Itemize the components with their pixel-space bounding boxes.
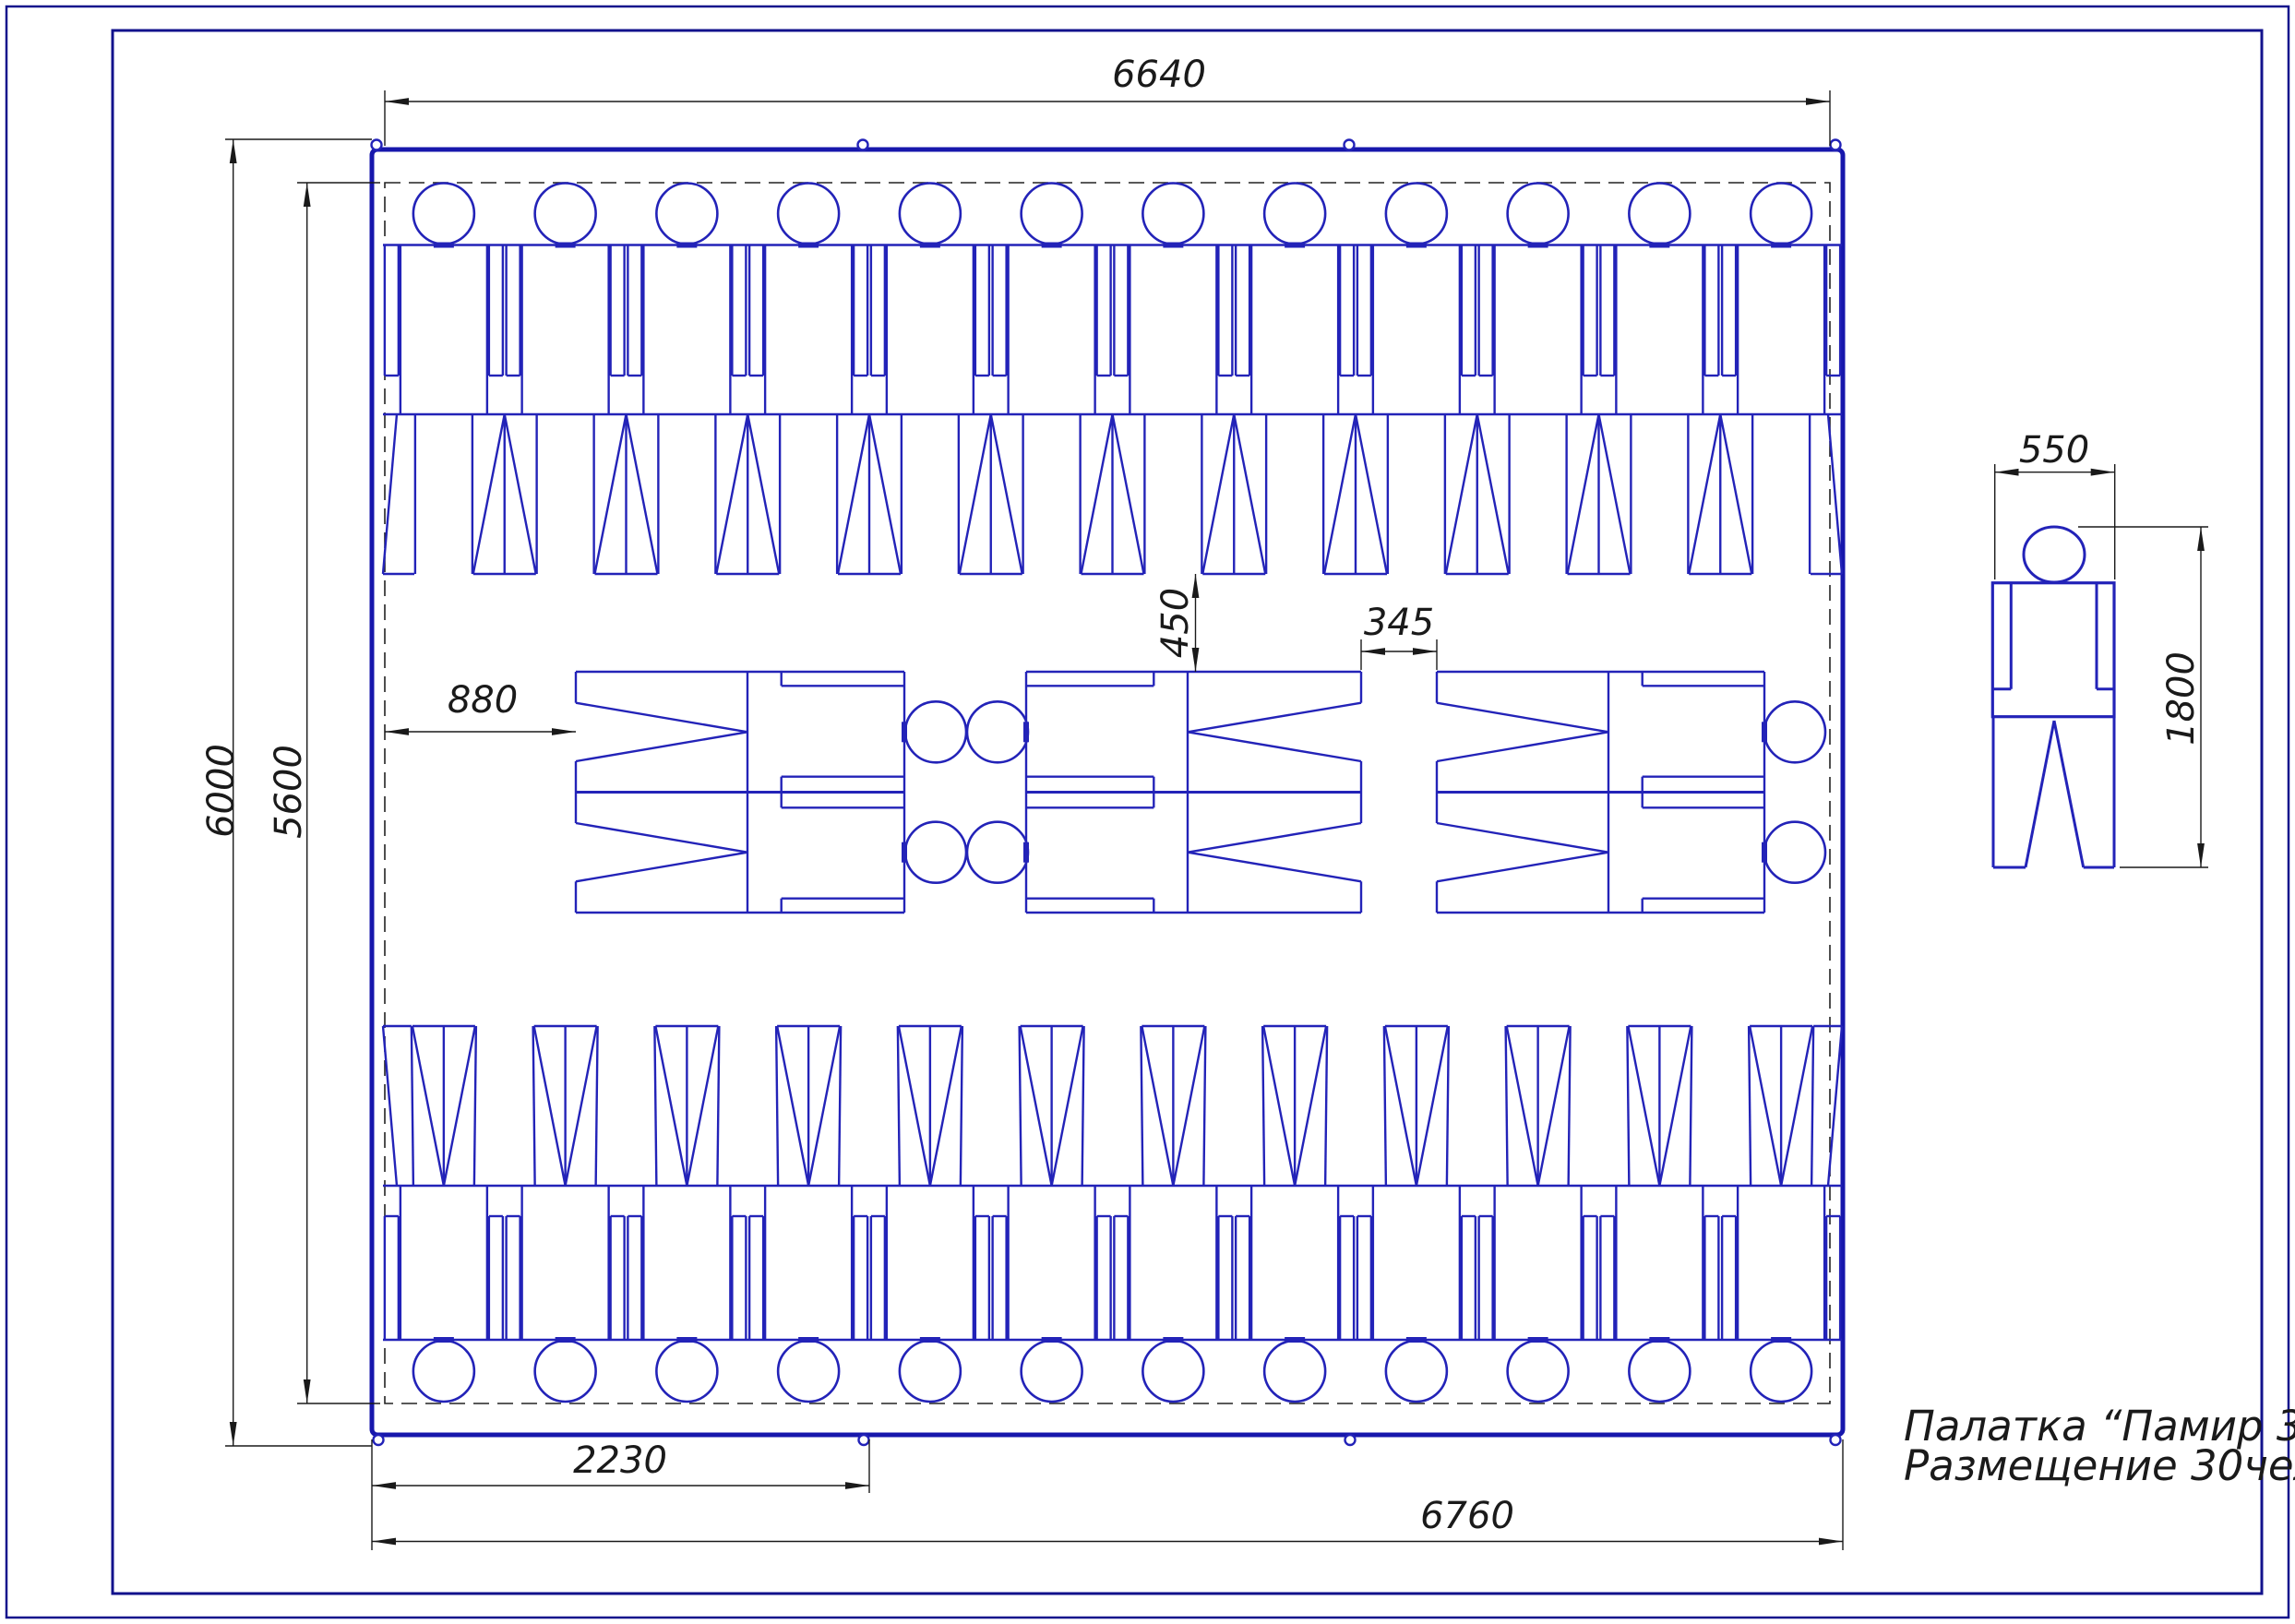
bottom-sleeper-row	[383, 1026, 1842, 1402]
dim-label-tent-top-width: 6640	[1112, 54, 1206, 96]
sleeper-figure	[993, 1026, 1111, 1402]
sleeper-figure	[628, 1026, 746, 1402]
tent-plan-drawing: 6640 6760 2230 6000 5600 880 450 345 550…	[0, 0, 2295, 1624]
legend-person-figure	[1992, 527, 2114, 867]
sleeper-figure	[1357, 1026, 1476, 1402]
dim-label-person-height: 1800	[2160, 651, 2203, 746]
dim-label-person-shoulder-width: 550	[2019, 429, 2089, 472]
sleeper-figure	[507, 1026, 625, 1402]
sleeper-pair-figure	[967, 672, 1361, 913]
tie-loop-icon	[374, 1435, 384, 1445]
drawing-sheet: 6640 6760 2230 6000 5600 880 450 345 550…	[0, 0, 2295, 1624]
sleeper-pair-figure	[576, 672, 966, 913]
dim-label-tent-bottom-width: 6760	[1420, 1495, 1514, 1537]
sleeper-figure	[749, 1026, 867, 1402]
dim-label-middle-groups-gap: 345	[1364, 602, 1434, 644]
dim-label-wall-to-feet-gap: 880	[448, 679, 518, 722]
sleeper-figure	[1114, 1026, 1232, 1402]
tie-loop-icon	[1345, 140, 1355, 150]
sleeper-pair-figure	[1437, 672, 1825, 913]
legend-head	[2024, 527, 2085, 582]
dim-label-sleeping-area-height: 5600	[268, 745, 310, 839]
tie-loop-icon	[372, 140, 382, 150]
top-sleeper-row	[383, 184, 1842, 575]
tie-loop-icon	[1831, 140, 1841, 150]
tie-loop-icon	[1345, 1435, 1356, 1445]
dim-label-rows-gap: 450	[1154, 588, 1197, 658]
tie-loop-icon	[859, 1435, 869, 1445]
tie-loop-icon	[1831, 1435, 1841, 1445]
sleeper-figure	[1236, 1026, 1354, 1402]
drawing-subtitle: Размещение 30чел.	[1904, 1441, 2295, 1490]
dim-label-module-width: 2230	[573, 1439, 667, 1482]
paper-outer-border	[6, 6, 2289, 1618]
tie-loop-icon	[858, 140, 868, 150]
middle-sleeper-groups	[576, 672, 1825, 913]
sleeper-figure	[1722, 1026, 1840, 1402]
sleeper-figure	[1600, 1026, 1718, 1402]
dim-label-tent-height-outer: 6000	[200, 744, 243, 838]
sleeper-figure	[385, 1026, 503, 1402]
sleeper-figure	[871, 1026, 989, 1402]
sleeper-figure	[1479, 1026, 1597, 1402]
